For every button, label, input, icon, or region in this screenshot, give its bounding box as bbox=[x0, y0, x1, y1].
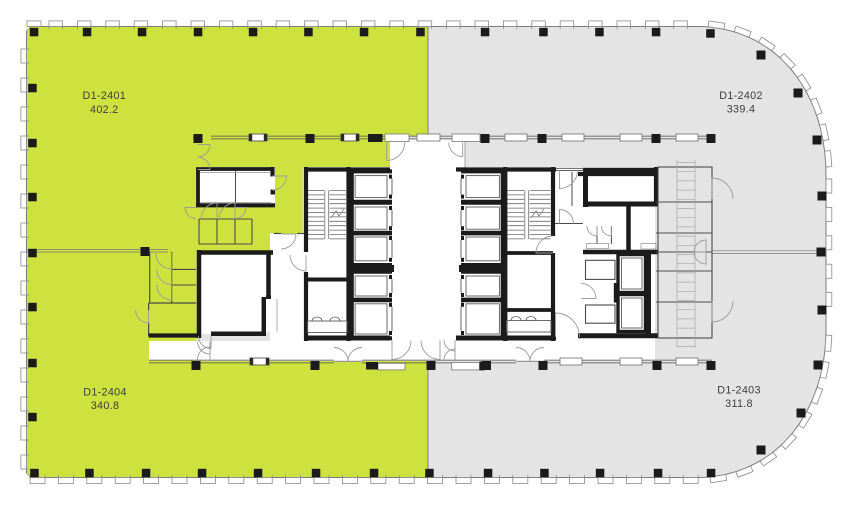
svg-text:D1-2402: D1-2402 bbox=[719, 90, 763, 102]
svg-text:311.8: 311.8 bbox=[725, 398, 753, 410]
svg-text:D1-2404: D1-2404 bbox=[83, 387, 127, 399]
svg-text:340.8: 340.8 bbox=[91, 400, 120, 412]
svg-text:D1-2403: D1-2403 bbox=[717, 385, 761, 397]
svg-text:339.4: 339.4 bbox=[727, 103, 756, 115]
svg-text:D1-2401: D1-2401 bbox=[83, 90, 127, 102]
svg-text:402.2: 402.2 bbox=[90, 104, 119, 116]
